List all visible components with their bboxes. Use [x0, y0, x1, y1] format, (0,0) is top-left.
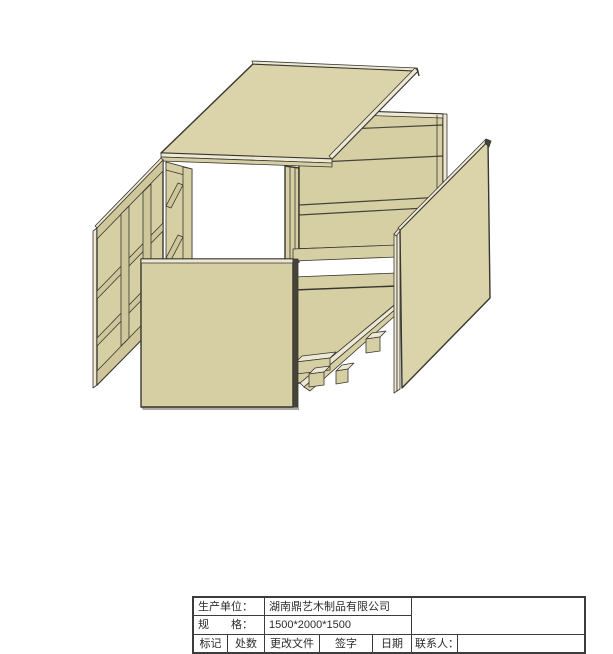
notes-cell [412, 598, 584, 635]
contact-value-cell [458, 635, 584, 654]
exploded-crate-drawing [0, 0, 613, 653]
front-panel [141, 259, 299, 410]
panel-dark-edge [293, 259, 298, 407]
count-header-cell: 处数 [228, 635, 265, 654]
contact-label-cell: 联系人： [412, 635, 458, 654]
corner-post [183, 167, 192, 262]
mark-header-cell: 标记 [194, 635, 228, 654]
change-file-header-cell: 更改文件 [265, 635, 320, 654]
spec-label-cell: 规 格： [194, 616, 265, 635]
date-header-cell: 日期 [373, 635, 412, 654]
producer-value-cell: 湖南鼎艺木制品有限公司 [265, 598, 412, 616]
mid-corner-post [285, 166, 299, 262]
title-block: 生产单位： 湖南鼎艺木制品有限公司 规 格： 1500*2000*1500 标记… [192, 596, 586, 654]
panel-edge [394, 231, 397, 393]
frame-batten [121, 206, 129, 346]
producer-label-cell: 生产单位： [194, 598, 265, 616]
signature-header-cell: 签字 [320, 635, 373, 654]
spec-value-cell: 1500*2000*1500 [265, 616, 412, 635]
back-left-wall [166, 162, 192, 262]
drawing-sheet: 生产单位： 湖南鼎艺木制品有限公司 规 格： 1500*2000*1500 标记… [0, 0, 613, 653]
floor-pallet [293, 245, 397, 391]
